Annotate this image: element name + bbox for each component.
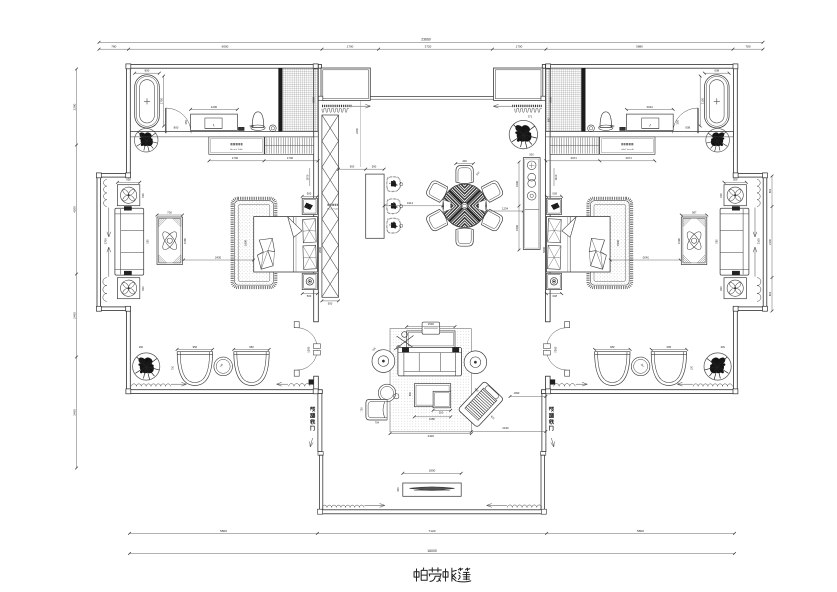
svg-text:600: 600 xyxy=(141,193,145,198)
svg-text:23660: 23660 xyxy=(421,38,431,42)
svg-text:350: 350 xyxy=(184,119,188,124)
svg-text:1750: 1750 xyxy=(159,97,163,104)
svg-text:800: 800 xyxy=(145,69,150,73)
svg-text:371: 371 xyxy=(528,115,533,119)
svg-text:1080: 1080 xyxy=(183,238,187,244)
svg-text:1500: 1500 xyxy=(428,322,435,326)
svg-text:2200: 2200 xyxy=(355,128,359,134)
svg-text:1200: 1200 xyxy=(211,105,218,109)
svg-text:650: 650 xyxy=(409,391,412,396)
svg-text:900: 900 xyxy=(350,165,355,169)
svg-text:400: 400 xyxy=(462,159,467,163)
svg-text:2460: 2460 xyxy=(72,312,76,319)
svg-text:Accent Table: Accent Table xyxy=(327,207,339,210)
svg-text:2700: 2700 xyxy=(103,238,107,244)
svg-text:780: 780 xyxy=(111,45,116,49)
svg-text:2430: 2430 xyxy=(215,255,222,259)
svg-text:1870: 1870 xyxy=(306,174,310,180)
svg-text:600: 600 xyxy=(768,188,772,193)
svg-text:1700: 1700 xyxy=(347,45,354,49)
svg-text:1700: 1700 xyxy=(287,156,294,160)
svg-text:500: 500 xyxy=(548,117,551,122)
svg-text:500: 500 xyxy=(307,192,312,196)
svg-text:350: 350 xyxy=(396,487,400,492)
svg-text:7120: 7120 xyxy=(429,529,436,533)
svg-text:5800: 5800 xyxy=(220,529,227,533)
svg-text:500: 500 xyxy=(529,152,534,156)
svg-text:780: 780 xyxy=(745,45,750,49)
svg-text:700: 700 xyxy=(167,210,172,214)
svg-text:4200: 4200 xyxy=(72,206,76,213)
svg-text:3460: 3460 xyxy=(72,409,76,416)
svg-text:Accent Table: Accent Table xyxy=(230,148,243,151)
svg-text:710: 710 xyxy=(172,365,175,370)
svg-text:2190: 2190 xyxy=(502,426,509,430)
svg-text:2400: 2400 xyxy=(428,434,435,438)
svg-text:5880: 5880 xyxy=(636,45,643,49)
svg-text:720: 720 xyxy=(359,407,363,412)
svg-text:650: 650 xyxy=(126,178,131,182)
svg-text:2000: 2000 xyxy=(318,247,322,253)
svg-text:600: 600 xyxy=(768,291,772,296)
svg-text:16000: 16000 xyxy=(427,549,437,553)
svg-text:1700: 1700 xyxy=(232,156,239,160)
svg-text:590: 590 xyxy=(372,165,377,169)
svg-text:1500: 1500 xyxy=(515,181,519,187)
svg-text:1234: 1234 xyxy=(502,206,508,210)
svg-text:1500: 1500 xyxy=(306,346,310,352)
svg-text:260: 260 xyxy=(139,346,144,349)
svg-text:520: 520 xyxy=(439,411,444,415)
svg-text:2280: 2280 xyxy=(72,103,76,110)
svg-text:3720: 3720 xyxy=(425,45,432,49)
svg-text:1080: 1080 xyxy=(429,417,435,421)
svg-text:500: 500 xyxy=(307,294,312,298)
svg-text:1800: 1800 xyxy=(244,240,248,246)
svg-text:950: 950 xyxy=(249,345,254,349)
svg-text:1914: 1914 xyxy=(407,201,413,205)
svg-text:6000: 6000 xyxy=(222,45,229,49)
svg-text:1800: 1800 xyxy=(429,469,436,473)
svg-text:5800: 5800 xyxy=(637,529,644,533)
svg-text:600: 600 xyxy=(141,286,145,291)
svg-text:1700: 1700 xyxy=(516,45,523,49)
svg-text:450: 450 xyxy=(249,124,254,128)
svg-text:800: 800 xyxy=(174,126,179,130)
svg-text:2100: 2100 xyxy=(768,239,772,245)
svg-text:1500: 1500 xyxy=(515,225,519,231)
svg-text:950: 950 xyxy=(193,345,198,349)
svg-text:1090: 1090 xyxy=(514,391,520,395)
svg-text:704: 704 xyxy=(375,422,380,425)
svg-text:500: 500 xyxy=(328,301,333,305)
svg-text:2000: 2000 xyxy=(312,97,316,103)
svg-text:180: 180 xyxy=(146,239,149,244)
